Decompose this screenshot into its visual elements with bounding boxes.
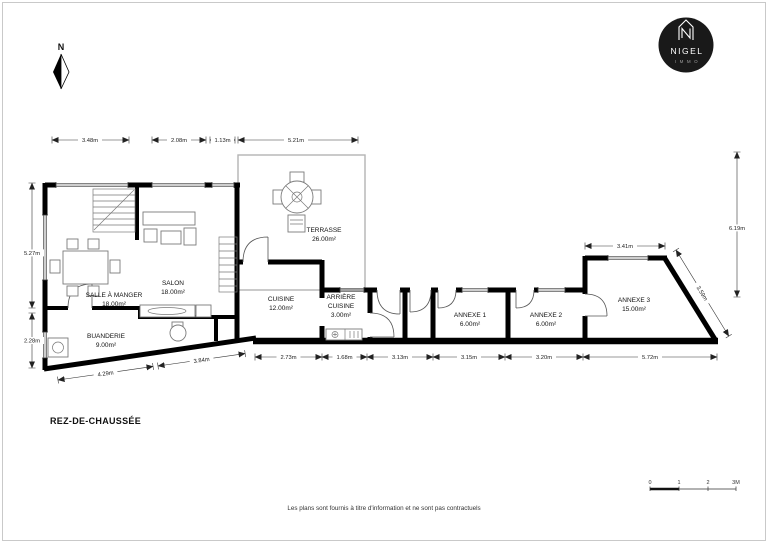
dim-annexe3-top: 3.41m [617, 244, 633, 250]
scale-label-2: 2 [706, 480, 709, 486]
furniture-sofa-set [143, 212, 196, 245]
room-label-arriere-cuisine-2: CUISINE [328, 303, 355, 310]
dim-top-3: 5.21m [288, 138, 304, 144]
footer-disclaimer: Les plans sont fournis à titre d'informa… [287, 505, 480, 512]
staircase-salon [219, 237, 237, 292]
dim-bottom-3: 3.15m [461, 355, 477, 361]
walls [44, 183, 718, 370]
dim-bottom-left-0: 4.29m [97, 370, 114, 378]
scale-bar: 0 1 2 3M [648, 480, 740, 491]
logo-sub: IMMO [675, 59, 701, 64]
room-area-annexe-1: 6.00m² [460, 321, 481, 328]
floor-plan-page: N NIGEL IMMO [0, 0, 768, 543]
dim-bottom-0: 2.73m [280, 355, 296, 361]
dim-left-1: 2.28m [24, 339, 40, 345]
room-label-annexe-1: ANNEXE 1 [454, 312, 487, 319]
room-area-buanderie: 9.00m² [96, 342, 117, 349]
room-label-annexe-2: ANNEXE 2 [530, 312, 563, 319]
dimensions-right: 6.19m 3.41m 3.59m [585, 152, 749, 338]
staircase-upper [93, 189, 135, 232]
room-area-annexe-3: 15.00m² [622, 306, 647, 313]
furniture-terrace-table [273, 172, 321, 232]
dimensions-left: 5.27m 2.28m [20, 183, 44, 368]
dim-bottom-4: 3.20m [536, 355, 552, 361]
furniture-kitchen-sink [326, 329, 362, 340]
dim-left-0: 5.27m [24, 251, 40, 257]
room-area-salon: 18.00m² [161, 289, 186, 296]
dimensions-top: 3.48m 2.08m 1.13m 5.21m [52, 137, 358, 145]
scale-label-3: 3M [732, 480, 740, 486]
dim-top-2: 1.13m [214, 138, 230, 144]
logo-nigel-immo: NIGEL IMMO [659, 18, 714, 73]
room-label-terrasse: TERRASSE [306, 227, 342, 234]
room-label-cuisine: CUISINE [268, 296, 295, 303]
logo-circle [659, 18, 714, 73]
room-area-salle-a-manger: 18.00m² [102, 301, 127, 308]
room-label-buanderie: BUANDERIE [87, 333, 126, 340]
dim-bottom-1: 1.68m [336, 355, 352, 361]
furniture-water-heater [170, 322, 186, 341]
dim-right-height: 6.19m [729, 226, 745, 232]
room-area-arriere-cuisine: 3.00m² [331, 312, 352, 319]
room-label-arriere-cuisine-1: ARRIÈRE [327, 292, 357, 301]
doors [68, 237, 607, 337]
north-arrow-icon: N [53, 42, 69, 89]
furniture-dining-table [50, 239, 120, 296]
page-title: REZ-DE-CHAUSSÉE [50, 416, 141, 426]
dim-bottom-5: 5.72m [642, 355, 658, 361]
dim-top-1: 2.08m [171, 138, 187, 144]
scale-label-1: 1 [677, 480, 680, 486]
room-area-cuisine: 12.00m² [269, 305, 294, 312]
north-label: N [58, 42, 65, 52]
room-label-salon: SALON [162, 280, 184, 287]
dim-bottom-2: 3.13m [392, 355, 408, 361]
dim-bottom-left-1: 3.84m [193, 357, 210, 365]
room-area-terrasse: 26.00m² [312, 236, 337, 243]
furniture-washing-machine [48, 338, 68, 357]
room-label-salle-a-manger: SALLE À MANGER [86, 290, 143, 299]
dim-top-0: 3.48m [82, 138, 98, 144]
scale-label-0: 0 [648, 480, 651, 486]
room-area-annexe-2: 6.00m² [536, 321, 557, 328]
logo-name: NIGEL [670, 46, 703, 56]
dimensions-bottom: 2.73m 1.68m 3.13m 3.15m 3.20m 5.72m [255, 354, 717, 362]
furniture-sideboard [140, 305, 211, 317]
room-label-annexe-3: ANNEXE 3 [618, 297, 651, 304]
